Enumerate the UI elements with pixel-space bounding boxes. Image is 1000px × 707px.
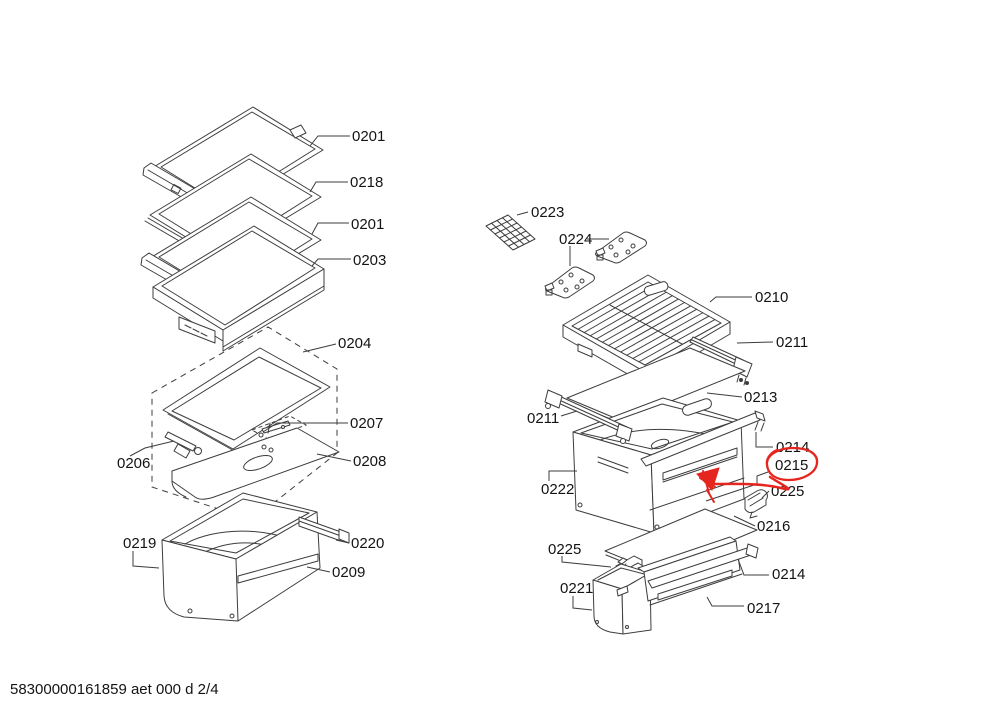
part-label-0220: 0220 [351, 535, 384, 552]
part-label-0214-lower: 0214 [772, 566, 805, 583]
part-ice-tray-0223 [486, 215, 535, 250]
part-label-0201-a: 0201 [352, 128, 385, 145]
part-label-0211-left: 0211 [527, 410, 559, 427]
part-label-0219: 0219 [123, 535, 156, 552]
part-label-0210: 0210 [755, 289, 788, 306]
part-label-0221: 0221 [560, 580, 593, 597]
part-label-0217: 0217 [747, 600, 780, 617]
part-label-0211-right: 0211 [776, 334, 808, 351]
part-label-0215-highlighted: 0215 [775, 457, 808, 474]
parts-diagram-page: 0201 0218 0201 0203 0204 0207 0206 0208 … [0, 0, 1000, 707]
document-number-footer: 58300000161859 aet 000 d 2/4 [10, 681, 219, 698]
exploded-parts-drawing: 0201 0218 0201 0203 0204 0207 0206 0208 … [0, 0, 1000, 707]
part-label-0206: 0206 [117, 455, 150, 472]
part-label-0216: 0216 [757, 518, 790, 535]
part-tray-0224-a [596, 232, 647, 263]
part-tray-0208 [172, 428, 339, 499]
part-label-0218: 0218 [350, 174, 383, 191]
part-label-0209: 0209 [332, 564, 365, 581]
part-tray-0224-b [545, 267, 595, 298]
part-drawer-0219 [162, 493, 320, 621]
part-label-0204: 0204 [338, 335, 371, 352]
part-clip-0225-upper [745, 490, 768, 518]
part-label-0213: 0213 [744, 389, 777, 406]
part-label-0203: 0203 [353, 252, 386, 269]
part-label-0223: 0223 [531, 204, 564, 221]
part-label-0208: 0208 [353, 453, 386, 470]
part-label-0225-lower: 0225 [548, 541, 581, 558]
part-label-0207: 0207 [350, 415, 383, 432]
part-label-0201-b: 0201 [351, 216, 384, 233]
part-drawer-0221 [593, 564, 651, 634]
part-label-0222: 0222 [541, 481, 574, 498]
part-label-0225-upper: 0225 [771, 483, 804, 500]
part-label-0224: 0224 [559, 231, 592, 248]
